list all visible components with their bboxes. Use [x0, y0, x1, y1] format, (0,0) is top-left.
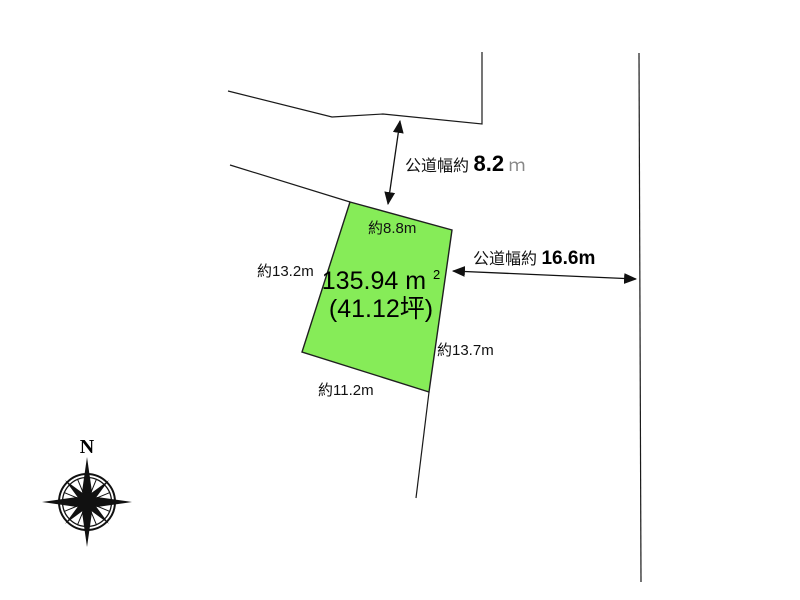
- parcel-area-superscript: 2: [433, 267, 440, 282]
- east-road-value: 16.6m: [541, 248, 595, 269]
- compass-rose-icon: [42, 457, 132, 547]
- east-road-boundary-line: [639, 53, 641, 582]
- parcel-area-number: 135.94: [322, 267, 399, 295]
- north-road-value: 8.2: [473, 151, 504, 176]
- land-plot-diagram: 公道幅約 8.2 ｍ 公道幅約 16.6m 135.94 m 2 (41.12坪…: [0, 0, 800, 600]
- parcel-area-unit: m: [405, 267, 426, 295]
- parcel-area-label: 135.94 m 2: [322, 267, 440, 295]
- east-road-width-arrow: [453, 271, 636, 279]
- edge-label-right: 約13.7m: [437, 342, 494, 359]
- east-road-prefix: 公道幅約: [473, 250, 537, 268]
- north-road-width-arrow: [388, 121, 400, 204]
- east-road-width-label: 公道幅約 16.6m: [473, 248, 595, 269]
- edge-label-bottom: 約11.2m: [318, 382, 374, 399]
- north-road-boundary-line: [228, 52, 482, 124]
- north-road-unit: ｍ: [509, 156, 526, 175]
- plot-svg: 公道幅約 8.2 ｍ 公道幅約 16.6m 135.94 m 2 (41.12坪…: [0, 0, 800, 600]
- north-road-width-label: 公道幅約 8.2 ｍ: [405, 151, 526, 176]
- north-road-prefix: 公道幅約: [405, 157, 469, 175]
- edge-label-left: 約13.2m: [257, 263, 314, 280]
- compass-center-dot: [78, 493, 97, 512]
- south-boundary-line: [416, 392, 429, 498]
- west-boundary-line: [230, 165, 350, 202]
- edge-label-top: 約8.8m: [368, 220, 416, 237]
- compass-north-label: N: [80, 436, 95, 458]
- parcel-tsubo-label: (41.12坪): [329, 295, 433, 323]
